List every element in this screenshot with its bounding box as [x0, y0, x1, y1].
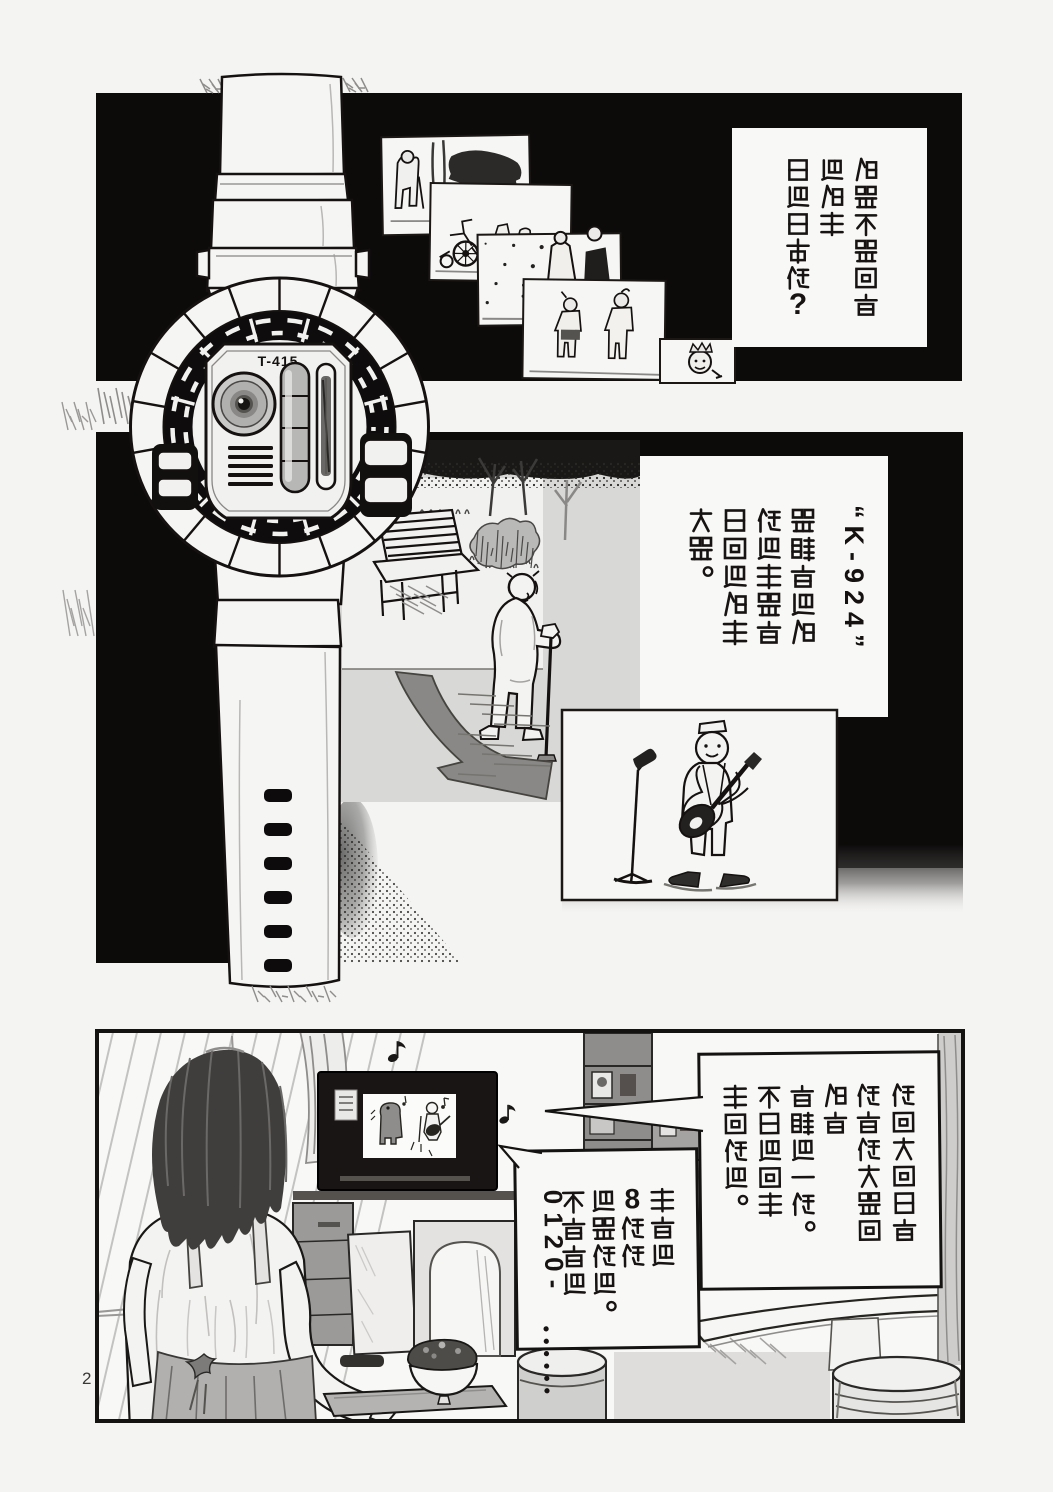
svg-text:?: ?: [789, 288, 807, 321]
svg-text:“K-924”: “K-924”: [839, 505, 869, 655]
svg-text:0120-: 0120-: [538, 1190, 569, 1297]
svg-text:2: 2: [82, 1369, 91, 1388]
svg-text:8: 8: [624, 1183, 640, 1214]
